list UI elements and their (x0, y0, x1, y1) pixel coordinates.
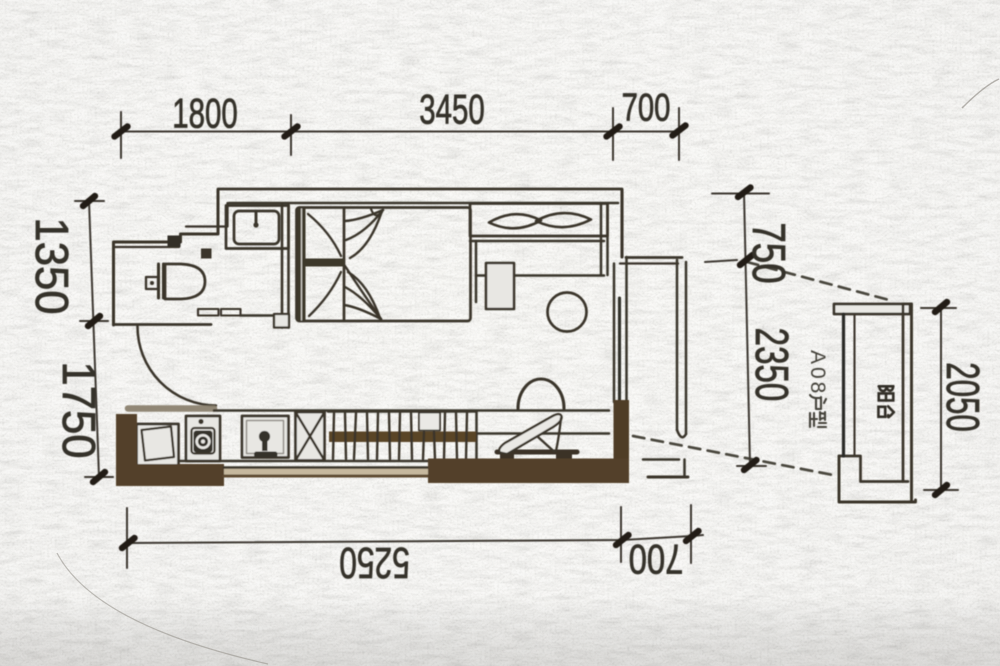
svg-text:700: 700 (629, 536, 684, 583)
svg-text:2350: 2350 (746, 328, 796, 402)
svg-text:1750: 1750 (53, 361, 105, 458)
svg-text:750: 750 (743, 222, 795, 283)
svg-text:2050: 2050 (936, 362, 987, 432)
svg-text:3450: 3450 (419, 85, 484, 133)
svg-text:5250: 5250 (339, 538, 409, 587)
svg-text:1350: 1350 (26, 217, 78, 314)
svg-text:700: 700 (622, 87, 671, 130)
svg-text:1800: 1800 (172, 89, 237, 137)
svg-text:A08: A08 (806, 350, 829, 396)
